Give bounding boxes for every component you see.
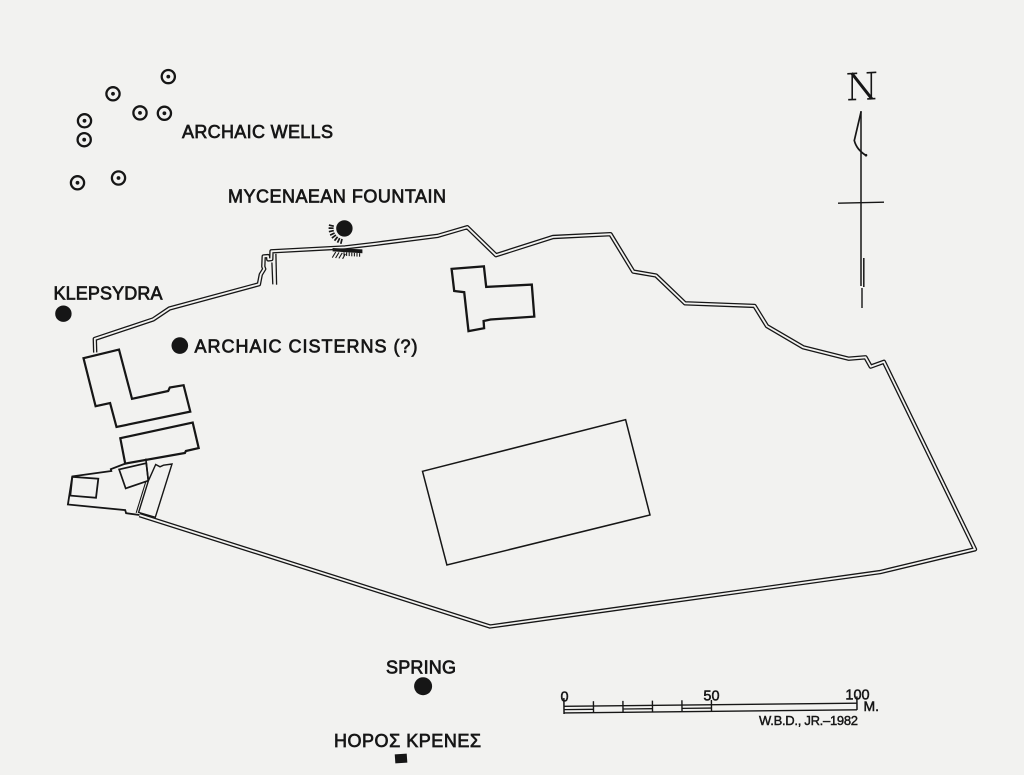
svg-text:ARCHAIC WELLS: ARCHAIC WELLS [182, 122, 333, 142]
svg-text:W.B.D., JR.–1982: W.B.D., JR.–1982 [759, 713, 858, 728]
svg-text:50: 50 [703, 688, 719, 704]
svg-text:ARCHAIC CISTERNS (?): ARCHAIC CISTERNS (?) [195, 336, 418, 356]
svg-text:M.: M. [864, 698, 880, 714]
svg-text:MYCENAEAN FOUNTAIN: MYCENAEAN FOUNTAIN [228, 187, 446, 207]
svg-text:SPRING: SPRING [386, 657, 456, 677]
svg-text:0: 0 [560, 690, 568, 706]
svg-text:ΗΟΡΟΣ ΚΡΕΝΕΣ: ΗΟΡΟΣ ΚΡΕΝΕΣ [334, 731, 481, 751]
svg-text:KLEPSYDRA: KLEPSYDRA [54, 283, 163, 303]
